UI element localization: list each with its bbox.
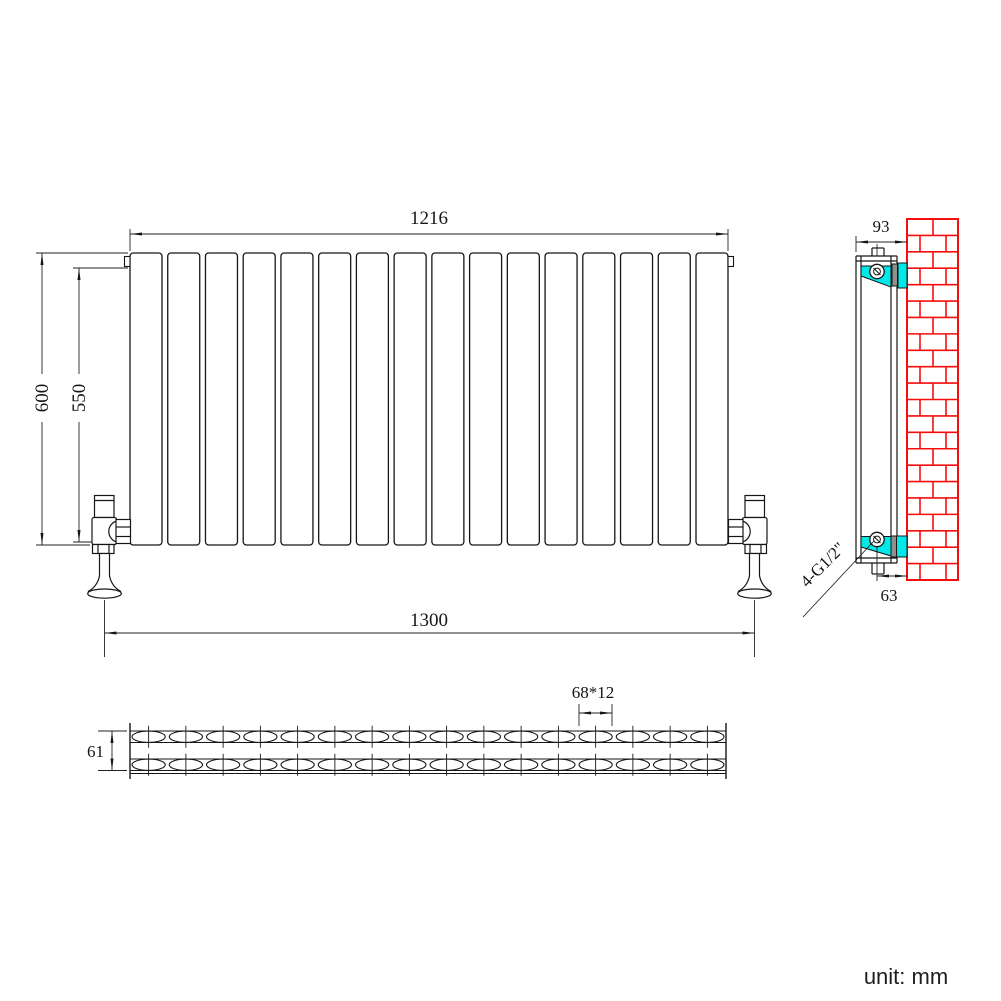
dim-valve-span-label: 1300	[410, 610, 448, 631]
drawing-svg: 1216 600 550 1300	[0, 0, 1001, 1001]
radiator-technical-drawing: 1216 600 550 1300	[0, 0, 1001, 1001]
radiator-panels	[130, 253, 728, 545]
brick-wall	[907, 219, 958, 580]
radiator-panel	[319, 253, 351, 545]
unit-label: unit: mm	[864, 964, 948, 989]
valve-head	[95, 496, 115, 518]
connection-label: 4-G1/2"	[796, 538, 848, 590]
side-view	[856, 219, 958, 580]
side-profile	[856, 244, 897, 574]
stub-top-right	[728, 257, 734, 267]
dim-bottom-offset-label: 63	[881, 586, 898, 605]
radiator-panel	[658, 253, 690, 545]
dim-section-depth-label: 61	[87, 742, 104, 761]
valve-union-nut	[116, 520, 131, 544]
bracket-wall-plate-bottom	[897, 536, 908, 557]
dim-tube-size	[579, 704, 612, 726]
bracket-spacer-bottom	[891, 536, 897, 557]
dim-tube-size-label: 68*12	[572, 683, 615, 702]
dim-depth-label: 93	[873, 217, 890, 236]
radiator-panel	[281, 253, 313, 545]
dim-width-top-label: 1216	[410, 208, 448, 229]
dim-depth	[856, 236, 907, 252]
bracket-spacer-top	[892, 264, 898, 286]
radiator-panel	[621, 253, 653, 545]
valve-right	[729, 496, 772, 599]
radiator-panel	[356, 253, 388, 545]
dim-width-top	[130, 229, 728, 251]
radiator-panel	[696, 253, 728, 545]
radiator-panel	[507, 253, 539, 545]
valve-lower-nut	[93, 545, 115, 554]
radiator-panel	[168, 253, 200, 545]
radiator-panel	[243, 253, 275, 545]
radiator-panel	[470, 253, 502, 545]
radiator-panel	[394, 253, 426, 545]
radiator-panel	[583, 253, 615, 545]
radiator-panel	[432, 253, 464, 545]
dim-height-label: 600	[32, 384, 53, 413]
front-view	[88, 253, 772, 598]
wall-bracket-bottom	[861, 532, 907, 557]
section-view	[130, 723, 726, 779]
radiator-panel	[130, 253, 162, 545]
dim-connection-height-label: 550	[69, 384, 90, 413]
bracket-wall-plate-top	[898, 263, 907, 288]
wall-bracket-top	[861, 263, 907, 288]
valve-left	[88, 496, 131, 599]
stub-top-left	[125, 257, 131, 267]
radiator-panel	[205, 253, 237, 545]
radiator-panel	[545, 253, 577, 545]
